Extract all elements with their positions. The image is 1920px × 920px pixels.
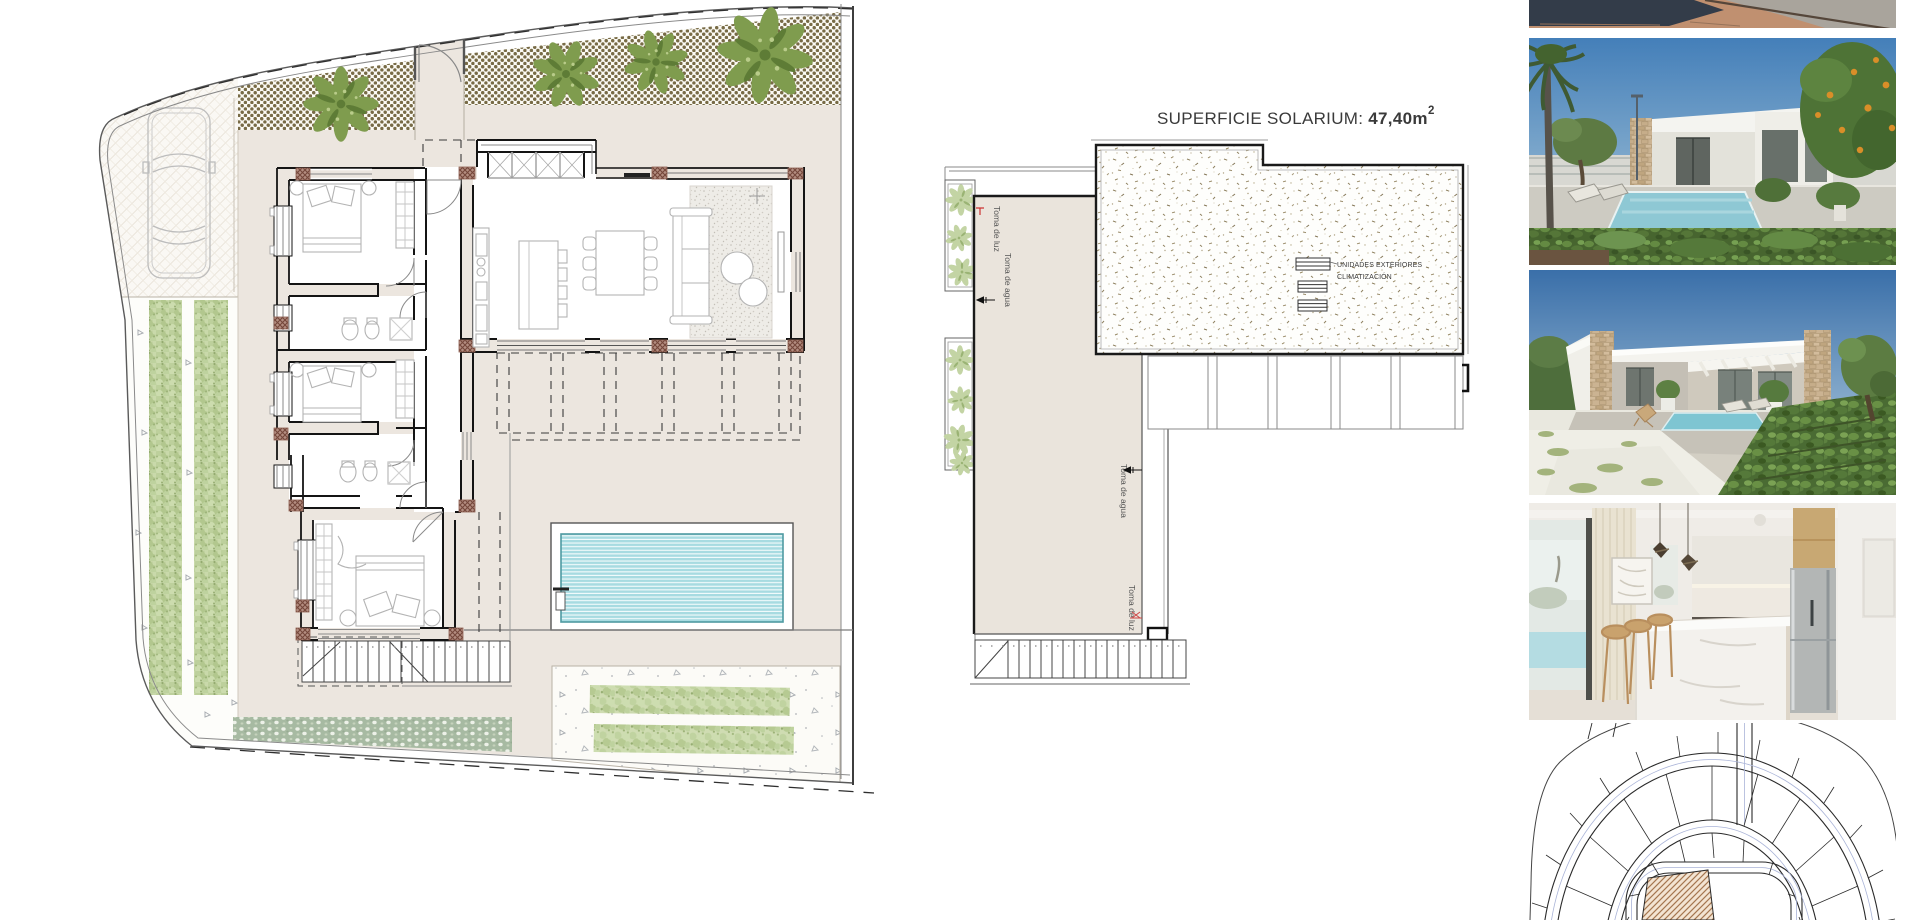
svg-text:Toma de agua: Toma de agua: [1003, 253, 1013, 307]
svg-text:CLIMATIZACIÓN: CLIMATIZACIÓN: [1337, 272, 1392, 281]
svg-text:Toma de luz: Toma de luz: [992, 206, 1002, 252]
svg-text:UNIDADES EXTERIORES: UNIDADES EXTERIORES: [1337, 262, 1422, 269]
svg-text:Toma de luz: Toma de luz: [1127, 585, 1137, 631]
svg-text:SUPERFICIE SOLARIUM: 47,40m: SUPERFICIE SOLARIUM: 47,40m: [1157, 109, 1428, 128]
svg-text:2: 2: [1428, 105, 1434, 117]
